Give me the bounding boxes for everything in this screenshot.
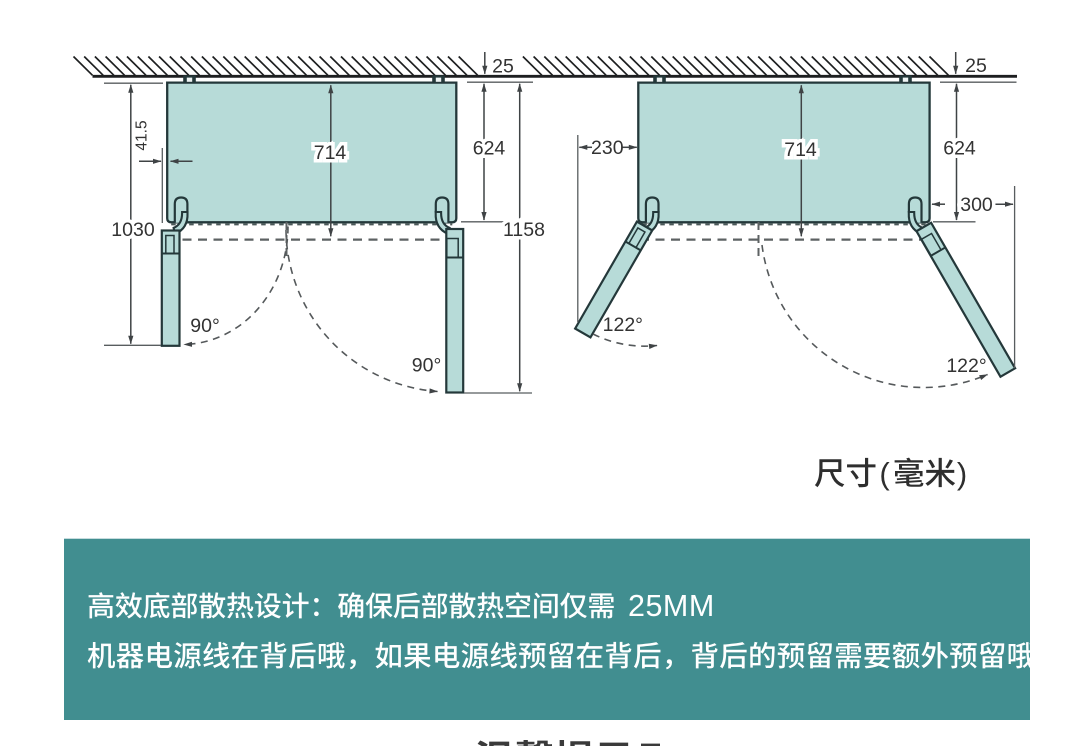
svg-text:624: 624 [943, 138, 976, 160]
svg-text:25MM: 25MM [628, 589, 715, 623]
svg-text:1030: 1030 [111, 219, 155, 241]
svg-text:90°: 90° [190, 315, 220, 337]
svg-text:90°: 90° [412, 355, 442, 377]
svg-text:25: 25 [965, 55, 987, 77]
svg-text:122°: 122° [603, 314, 643, 336]
svg-text:1158: 1158 [503, 219, 545, 241]
svg-text:41.5: 41.5 [134, 120, 151, 150]
svg-text:714: 714 [784, 139, 817, 161]
svg-text:624: 624 [473, 138, 506, 160]
svg-text:): ) [957, 456, 967, 491]
svg-text:25: 25 [492, 56, 514, 78]
svg-text:122°: 122° [946, 355, 986, 377]
svg-text:300: 300 [960, 194, 993, 216]
svg-text:230: 230 [591, 137, 624, 159]
svg-text:714: 714 [314, 142, 347, 164]
svg-text:(: ( [879, 456, 890, 491]
